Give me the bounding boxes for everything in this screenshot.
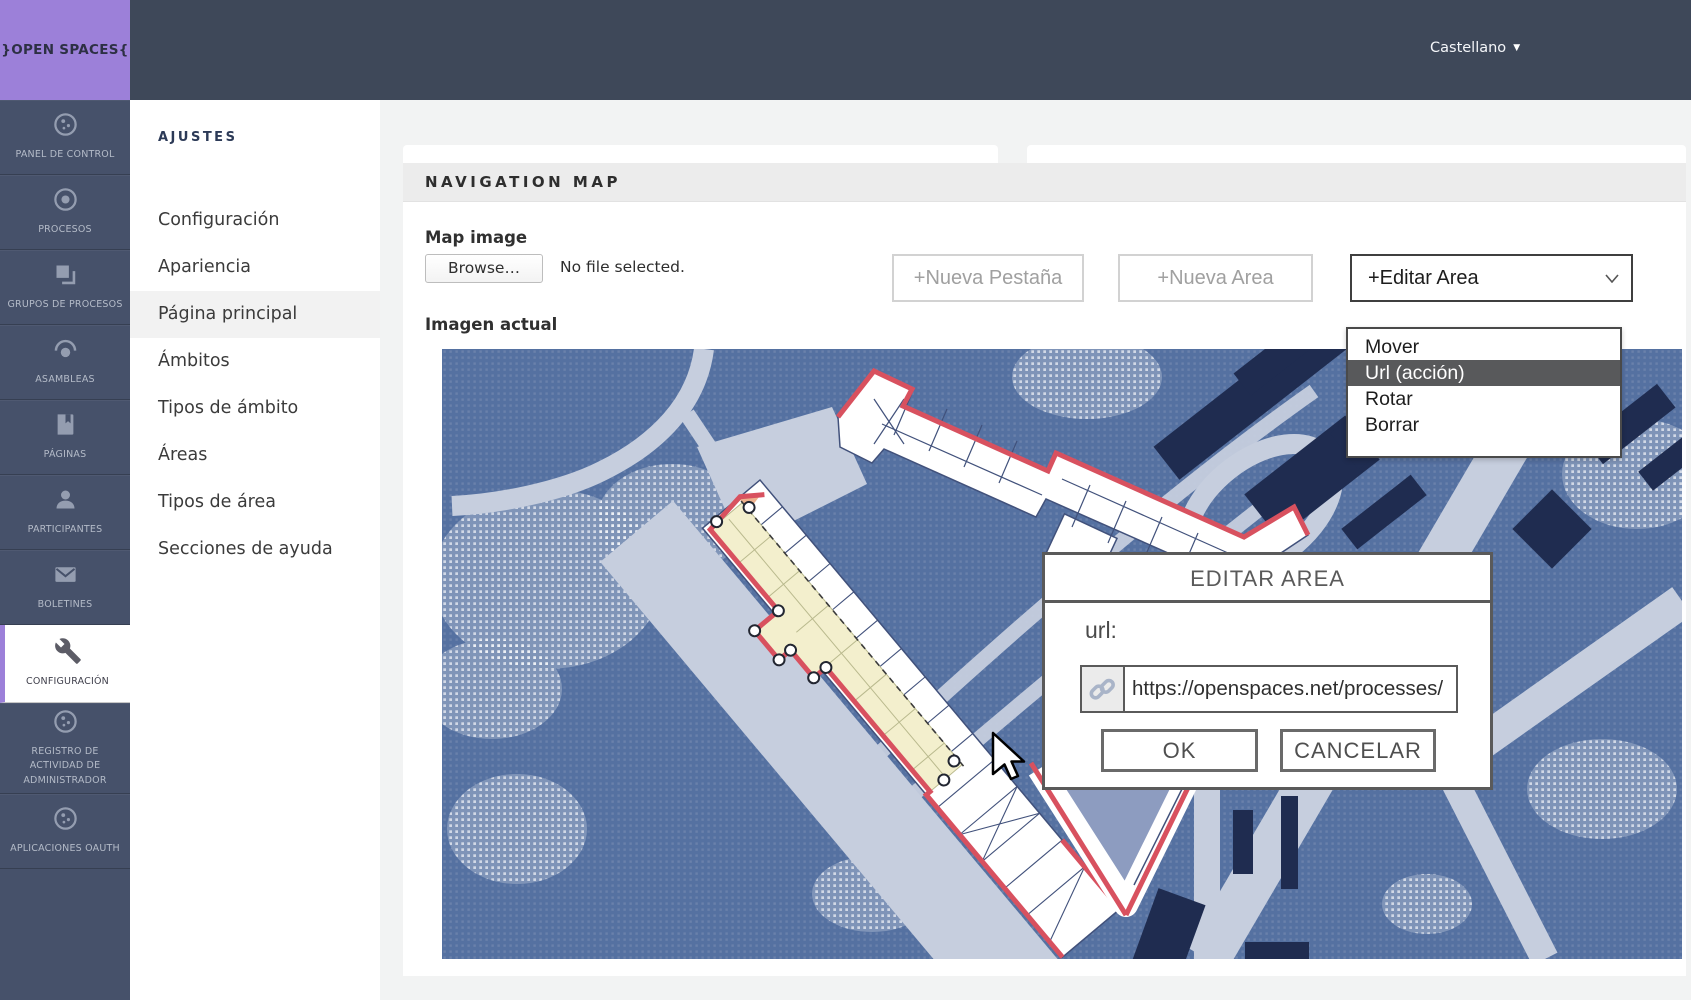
dashboard-icon: [52, 708, 79, 739]
url-input[interactable]: https://openspaces.net/processes/: [1125, 667, 1456, 711]
assembly-icon: [52, 336, 79, 367]
layers-icon: [52, 261, 79, 292]
icon-sidebar: PANEL DE CONTROL PROCESOS GRUPOS DE PROC…: [0, 100, 130, 1000]
sidebar-item-configuracion[interactable]: CONFIGURACIÓN: [0, 625, 130, 703]
menu-item-url-accion[interactable]: Url (acción): [1348, 360, 1620, 386]
dashboard-icon: [52, 111, 79, 142]
sidebar-item-label: ASAMBLEAS: [35, 373, 95, 387]
settings-item-tipos-de-ambito[interactable]: Tipos de ámbito: [130, 385, 380, 432]
sidebar-item-participantes[interactable]: PARTICIPANTES: [0, 475, 130, 550]
settings-item-configuracion[interactable]: Configuración: [130, 197, 380, 244]
sidebar-item-registro-actividad[interactable]: REGISTRO DE ACTIVIDAD DE ADMINISTRADOR: [0, 703, 130, 794]
map-image-label: Map image: [425, 228, 527, 247]
sidebar-item-label: PANEL DE CONTROL: [16, 148, 115, 162]
edit-area-select[interactable]: +Editar Area: [1350, 254, 1633, 302]
logo[interactable]: }OPEN SPACES{: [0, 0, 130, 100]
menu-item-mover[interactable]: Mover: [1348, 334, 1620, 360]
language-label: Castellano: [1430, 40, 1506, 56]
top-bar: }OPEN SPACES{ Castellano ▼: [0, 0, 1691, 100]
current-image-label: Imagen actual: [425, 315, 557, 334]
sidebar-item-procesos[interactable]: PROCESOS: [0, 175, 130, 250]
sidebar-item-label: APLICACIONES OAUTH: [10, 842, 120, 856]
envelope-icon: [52, 561, 79, 592]
browse-button[interactable]: Browse…: [425, 254, 543, 283]
card-top-left: [403, 145, 998, 163]
sidebar-item-label: CONFIGURACIÓN: [26, 675, 109, 689]
dashboard-icon: [52, 805, 79, 836]
admin-page: }OPEN SPACES{ Castellano ▼ PANEL DE CONT…: [0, 0, 1691, 1000]
settings-item-secciones-de-ayuda[interactable]: Secciones de ayuda: [130, 526, 380, 573]
sidebar-item-label: REGISTRO DE ACTIVIDAD DE ADMINISTRADOR: [3, 745, 127, 788]
sidebar-item-label: BOLETINES: [38, 598, 93, 612]
sidebar-item-panel-de-control[interactable]: PANEL DE CONTROL: [0, 100, 130, 175]
sidebar-item-boletines[interactable]: BOLETINES: [0, 550, 130, 625]
logo-text: }OPEN SPACES{: [1, 42, 128, 58]
settings-heading: AJUSTES: [158, 130, 380, 145]
edit-area-select-value: +Editar Area: [1368, 267, 1479, 290]
cancel-button[interactable]: CANCELAR: [1280, 729, 1436, 772]
settings-nav: Configuración Apariencia Página principa…: [130, 197, 380, 573]
language-selector[interactable]: Castellano ▼: [1430, 40, 1520, 56]
url-label: url:: [1085, 617, 1117, 644]
settings-item-tipos-de-area[interactable]: Tipos de área: [130, 479, 380, 526]
menu-item-rotar[interactable]: Rotar: [1348, 386, 1620, 412]
menu-item-borrar[interactable]: Borrar: [1348, 412, 1620, 438]
new-area-button[interactable]: +Nueva Area: [1118, 254, 1313, 302]
sidebar-item-label: PARTICIPANTES: [28, 523, 103, 537]
wrench-icon: [54, 637, 82, 669]
sidebar-item-label: PÁGINAS: [44, 448, 87, 462]
sidebar-item-label: PROCESOS: [38, 223, 92, 237]
no-file-text: No file selected.: [560, 258, 685, 276]
settings-item-apariencia[interactable]: Apariencia: [130, 244, 380, 291]
settings-sidebar: AJUSTES Configuración Apariencia Página …: [130, 100, 380, 1000]
person-icon: [52, 486, 79, 517]
sidebar-item-paginas[interactable]: PÁGINAS: [0, 400, 130, 475]
chevron-down-icon: [1605, 274, 1619, 283]
settings-item-ambitos[interactable]: Ámbitos: [130, 338, 380, 385]
link-icon: [1082, 667, 1125, 711]
chevron-down-icon: ▼: [1513, 43, 1520, 53]
dialog-title: EDITAR AREA: [1045, 555, 1490, 603]
target-icon: [52, 186, 79, 217]
ok-button[interactable]: OK: [1101, 729, 1258, 772]
edit-area-dialog: EDITAR AREA url: https://openspaces.net/…: [1042, 552, 1493, 790]
settings-item-pagina-principal[interactable]: Página principal: [130, 291, 380, 338]
book-icon: [52, 411, 79, 442]
settings-item-areas[interactable]: Áreas: [130, 432, 380, 479]
sidebar-item-asambleas[interactable]: ASAMBLEAS: [0, 325, 130, 400]
sidebar-item-grupos-de-procesos[interactable]: GRUPOS DE PROCESOS: [0, 250, 130, 325]
card-top-right: [1027, 145, 1686, 163]
sidebar-item-aplicaciones-oauth[interactable]: APLICACIONES OAUTH: [0, 794, 130, 869]
new-tab-button[interactable]: +Nueva Pestaña: [892, 254, 1084, 302]
url-input-group: https://openspaces.net/processes/: [1080, 665, 1458, 713]
section-title: NAVIGATION MAP: [403, 163, 1686, 202]
sidebar-item-label: GRUPOS DE PROCESOS: [7, 298, 122, 312]
edit-area-menu: Mover Url (acción) Rotar Borrar: [1346, 327, 1622, 458]
